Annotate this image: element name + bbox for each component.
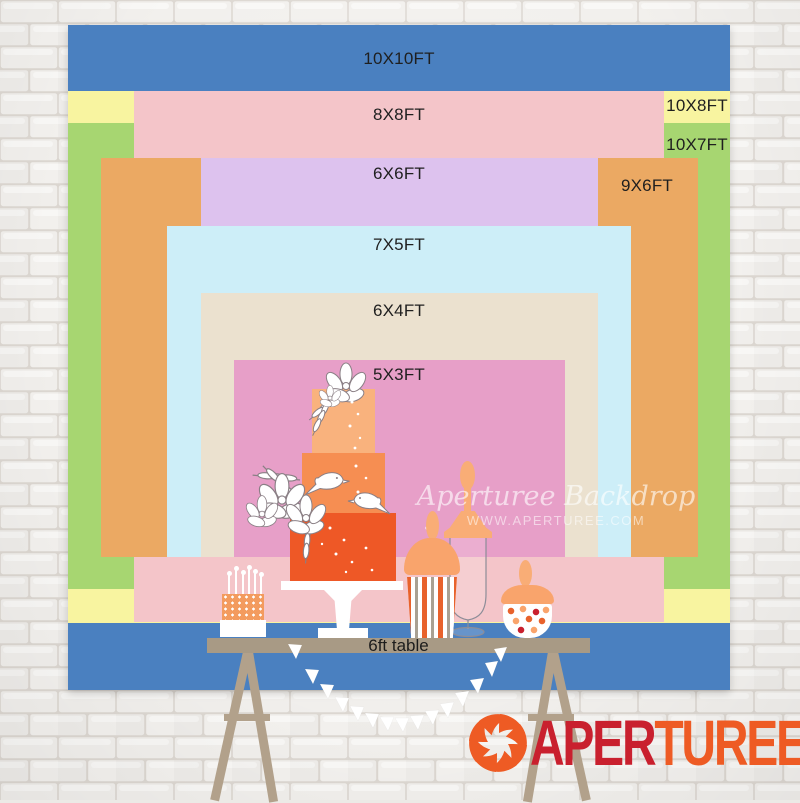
cake-pop-stick [260,576,262,595]
label-7x5ft: 7X5FT [373,236,425,253]
label-10x8ft: 10X8FT [666,97,728,114]
cake-pop-stick [235,570,237,595]
cake-tier-top [312,389,375,453]
candy-jar-lid [501,585,554,604]
table-leg-left-crossbar [224,714,270,721]
cake-tier-bottom [290,513,396,581]
label-6x4ft: 6X4FT [373,302,425,319]
cake-stand-base [318,628,368,638]
logo-text-part1: APER [530,707,654,779]
logo-wordmark: APERTUREE [530,711,800,775]
table-bar: 6ft table [207,638,590,653]
logo-text-part2: TUREE [654,707,800,779]
cake-stand-plate [281,581,403,590]
aperture-icon [466,711,530,775]
watermark-url: WWW.APERTUREE.COM [467,513,645,528]
striped-jar-knob [426,511,439,540]
label-10x10ft: 10X10FT [363,50,434,67]
cake-pop-stick [248,569,250,595]
table-label: 6ft table [368,636,429,655]
label-5x3ft: 5X3FT [373,366,425,383]
cake-pop-stick [228,575,230,595]
aperturee-logo: APERTUREE [466,711,800,775]
cake-pop-stick [242,574,244,595]
label-9x6ft: 9X6FT [621,177,673,194]
candy-jar-knob [519,560,532,587]
label-10x7ft: 10X7FT [666,136,728,153]
cake-tier-middle [302,453,385,513]
label-6x6ft: 6X6FT [373,165,425,182]
cake-pops-box [220,620,266,637]
label-8x8ft: 8X8FT [373,106,425,123]
cake-pop-stick [254,573,256,595]
watermark-script: Aperturee Backdrop [417,481,696,512]
cake-pops-block [222,594,264,620]
striped-jar-stripes [406,577,458,638]
